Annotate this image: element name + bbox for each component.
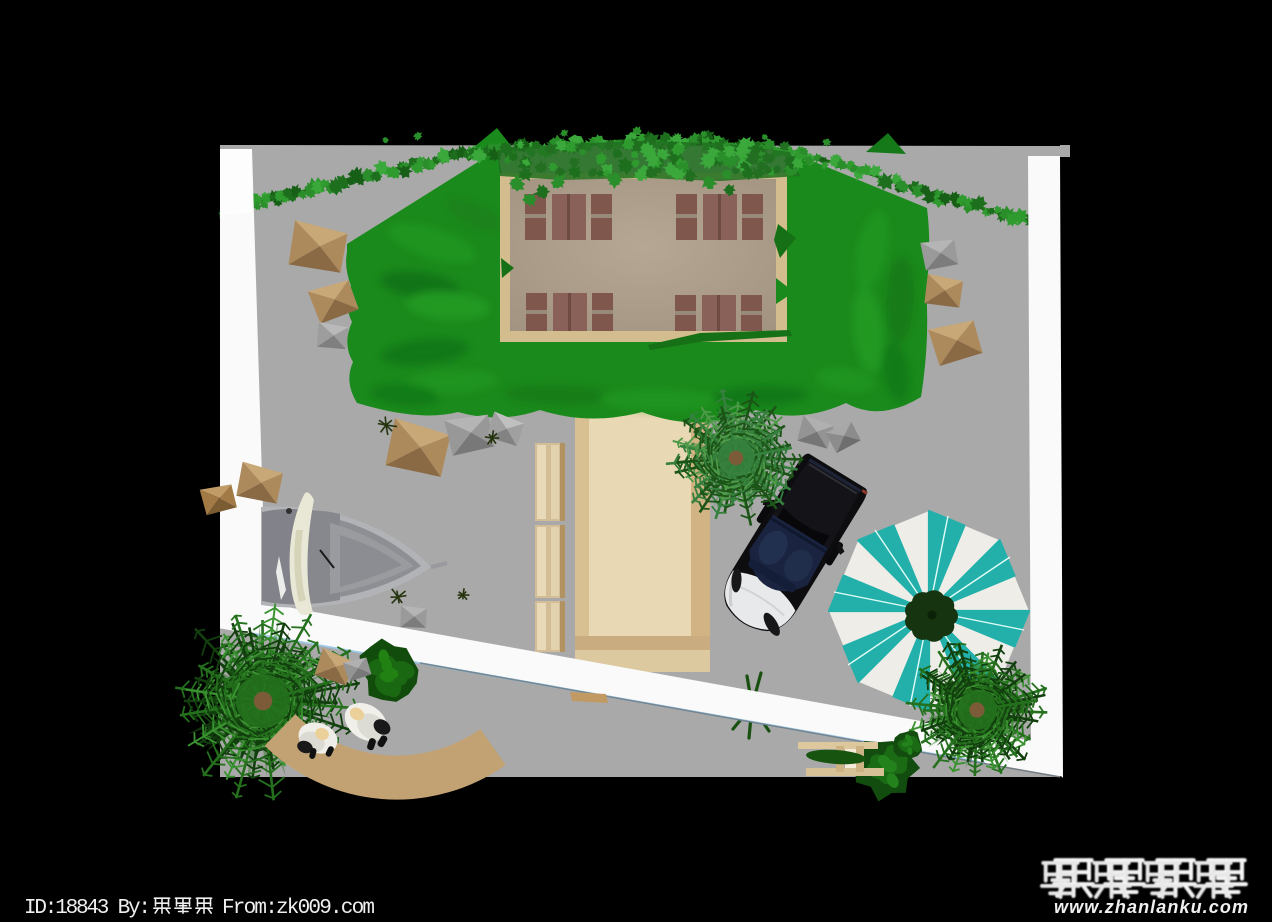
svg-text:www.zhanlanku.com: www.zhanlanku.com [1054,897,1248,917]
svg-text:ID:18843 By:: ID:18843 By: [24,897,151,920]
svg-text:From:zk009.com: From:zk009.com [222,897,375,920]
